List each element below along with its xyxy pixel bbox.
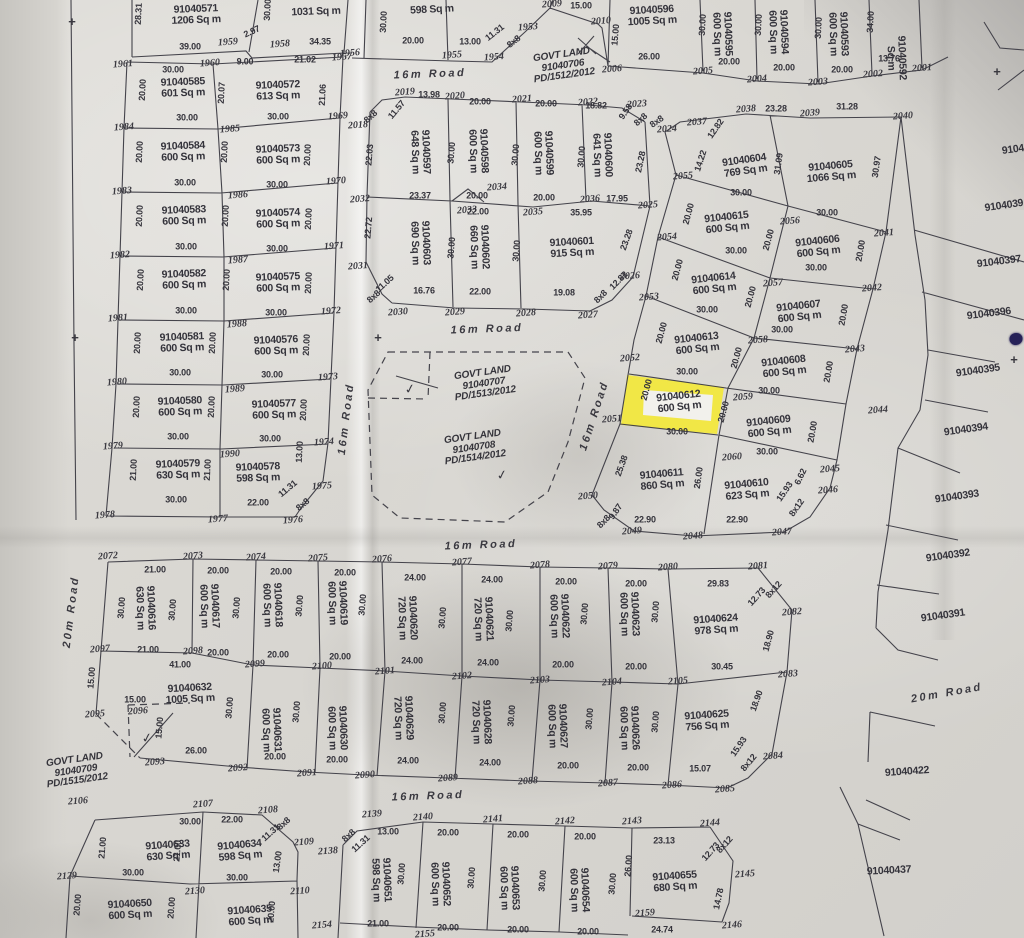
corner-point-2009: 2009: [542, 0, 563, 11]
corner-point-2096: 2096: [128, 706, 149, 718]
parcel-label-91040628: 91040628720 Sq m: [469, 699, 493, 744]
dimension-label: 20.00: [266, 901, 277, 923]
corner-point-2021: 2021: [512, 94, 533, 106]
corner-point-2090: 2090: [355, 770, 376, 782]
parcel-label-91040605: 910406051066 Sq m: [806, 159, 857, 185]
dimension-label: 30.00: [730, 188, 752, 197]
corner-point-2084: 2084: [763, 751, 784, 763]
dimension-label: 20.00: [535, 99, 557, 108]
corner-point-2081: 2081: [748, 561, 769, 573]
parcel-label-91040584: 91040584600 Sq m: [160, 140, 205, 164]
corner-point-2052: 2052: [620, 353, 641, 365]
corner-point-2110: 2110: [290, 886, 310, 898]
check-mark: ✓: [495, 467, 508, 482]
dimension-label: 30.00: [167, 432, 189, 441]
dimension-label: 20.00: [466, 191, 488, 200]
dimension-label: 20.00: [299, 399, 310, 421]
dimension-label: 23.13: [653, 836, 675, 845]
corner-point-1979: 1979: [103, 441, 124, 453]
parcel-label-91040618: 91040618600 Sq m: [260, 582, 284, 627]
dimension-label: 22.03: [364, 144, 375, 166]
corner-point-2041: 2041: [874, 228, 895, 240]
corner-point-2139: 2139: [362, 809, 383, 821]
dimension-label: 20.00: [329, 652, 351, 661]
dimension-label: 30.00: [576, 146, 587, 168]
dimension-label: 24.00: [481, 575, 503, 584]
plus-mark: +: [1010, 353, 1018, 367]
corner-point-2101: 2101: [375, 666, 396, 678]
corner-point-2091: 2091: [297, 768, 318, 780]
corner-point-2143: 2143: [622, 816, 643, 828]
corner-point-1959: 1959: [218, 37, 239, 49]
dimension-label: 20.00: [334, 568, 356, 577]
corner-point-2079: 2079: [598, 561, 619, 573]
parcel-label-91040655: 91040655680 Sq m: [652, 869, 698, 894]
dimension-label: 34.00: [866, 11, 877, 33]
plus-mark: +: [374, 331, 382, 345]
dimension-label: 30.00: [771, 325, 793, 334]
dimension-label: 30.00: [174, 178, 196, 187]
corner-point-2093: 2093: [145, 757, 166, 769]
corner-point-1987: 1987: [228, 255, 249, 267]
dimension-label: 21.00: [367, 919, 389, 928]
corner-point-2155: 2155: [415, 929, 436, 938]
corner-point-2086: 2086: [662, 780, 683, 792]
dimension-label: 20.00: [469, 97, 491, 106]
dimension-label: 20.00: [304, 272, 315, 294]
dimension-label: 17.95: [606, 194, 628, 203]
dimension-label: 20.00: [773, 63, 795, 72]
parcel-label-91040580: 91040580600 Sq m: [157, 395, 202, 419]
corner-point-1978: 1978: [95, 510, 116, 522]
corner-point-2100: 2100: [312, 661, 333, 673]
parcel-label-91040571: 910405711206 Sq m: [171, 3, 221, 27]
corner-point-2107: 2107: [193, 799, 214, 811]
dimension-label: 20.00: [533, 193, 555, 202]
corner-point-2058: 2058: [748, 335, 769, 347]
corner-point-1977: 1977: [208, 514, 229, 526]
parcel-label-91040599: 91040599600 Sq m: [531, 130, 555, 175]
dimension-label: 31.28: [836, 102, 858, 111]
parcel-label-91040600: 91040600641 Sq m: [590, 132, 614, 177]
parcel-label-91040615: 91040615600 Sq m: [704, 210, 750, 237]
dimension-label: 22.90: [634, 515, 656, 524]
parcel-label-91040437: 91040437: [867, 864, 912, 877]
parcel-label-91040634: 91040634598 Sq m: [217, 838, 263, 864]
dimension-label: 30.00: [650, 711, 661, 733]
dimension-label: 15.00: [570, 1, 592, 10]
corner-point-2031: 2031: [348, 261, 369, 273]
dimension-label: 30.00: [437, 702, 448, 724]
parcel-label-91040583: 91040583600 Sq m: [161, 204, 206, 228]
dimension-label: 30.00: [696, 305, 718, 314]
dimension-label: 30.00: [607, 873, 618, 895]
corner-point-1984: 1984: [114, 122, 135, 134]
dimension-label: 20.00: [207, 648, 229, 657]
dimension-label: 20.00: [507, 830, 529, 839]
dimension-label: 20.00: [133, 332, 144, 354]
dimension-label: 30.00: [259, 434, 281, 443]
corner-point-2087: 2087: [598, 778, 619, 790]
dimension-label: 29.83: [707, 579, 729, 588]
corner-point-2053: 2053: [639, 292, 660, 304]
corner-point-2006: 2006: [602, 64, 623, 76]
corner-point-2049: 2049: [622, 526, 643, 538]
dimension-label: 30.00: [267, 112, 289, 121]
dimension-label: 20.00: [208, 332, 219, 354]
dimension-label: 24.00: [479, 758, 501, 767]
dimension-label: 26.00: [623, 855, 634, 877]
corner-point-2001: 2001: [912, 63, 933, 75]
parcel-label-91040651: 91040651598 Sq m: [369, 857, 393, 902]
dimension-label: 30.00: [698, 14, 709, 36]
parcel-label-91040650: 91040650600 Sq m: [107, 898, 152, 922]
dimension-label: 13.98: [418, 90, 440, 99]
dimension-label: 13.00: [295, 441, 306, 463]
corner-point-1961: 1961: [113, 59, 134, 71]
dimension-label: 30.00: [263, 0, 274, 21]
corner-point-2145: 2145: [735, 869, 756, 881]
plus-mark: +: [993, 65, 1001, 79]
corner-point-2074: 2074: [246, 552, 267, 564]
corner-point-1989: 1989: [225, 384, 246, 396]
dimension-label: 20.07: [217, 82, 228, 104]
parcel-label-91040630: 91040630600 Sq m: [325, 705, 349, 750]
dimension-label: 20.00: [302, 334, 313, 356]
corner-point-2010: 2010: [591, 16, 612, 28]
dimension-label: 30.00: [650, 601, 661, 623]
dimension-label: 30.00: [754, 14, 765, 36]
dimension-label: 30.00: [165, 495, 187, 504]
parcel-label-91040626: 91040626600 Sq m: [617, 705, 641, 750]
parcel-label-91040622: 91040622600 Sq m: [547, 593, 571, 638]
corner-point-1960: 1960: [200, 58, 221, 70]
corner-point-2057: 2057: [763, 278, 784, 290]
dimension-label: 20.00: [132, 396, 143, 418]
parcel-label-91040612: 91040612600 Sq m: [656, 389, 702, 416]
corner-point-2080: 2080: [658, 562, 679, 574]
corner-point-1955: 1955: [442, 50, 463, 62]
parcel-label-91040613: 91040613600 Sq m: [674, 331, 720, 358]
dimension-label: 15.07: [689, 764, 711, 773]
parcel-label-91040619: 91040619600 Sq m: [325, 580, 349, 625]
dimension-label: 30.00: [231, 597, 242, 619]
corner-point-2025: 2025: [638, 200, 659, 212]
corner-point-2138: 2138: [318, 846, 339, 858]
corner-point-1976: 1976: [283, 515, 304, 527]
corner-point-2098: 2098: [183, 646, 204, 658]
corner-point-1972: 1972: [321, 306, 342, 318]
parcel-boundary-lines: [0, 0, 1024, 938]
dimension-label: 30.00: [261, 370, 283, 379]
dimension-label: 20.00: [437, 828, 459, 837]
dimension-label: 30.00: [396, 863, 407, 885]
check-mark: ✓: [403, 381, 416, 396]
parcel-label-91040574: 91040574600 Sq m: [255, 207, 300, 231]
dimension-label: 20.00: [625, 579, 647, 588]
dimension-label: 30.00: [579, 603, 590, 625]
corner-point-2102: 2102: [452, 671, 473, 683]
dimension-label: 30.00: [805, 263, 827, 272]
dimension-label: 30.00: [169, 368, 191, 377]
corner-point-2103: 2103: [530, 675, 551, 687]
corner-point-2154: 2154: [312, 920, 333, 932]
dimension-label: 30.00: [226, 873, 248, 882]
dimension-label: 20.00: [437, 923, 459, 932]
dimension-label: 30.00: [504, 610, 515, 632]
dimension-label: 13.00: [459, 37, 481, 46]
dimension-label: 22.00: [221, 815, 243, 824]
dimension-label: 21.00: [144, 565, 166, 574]
corner-point-2142: 2142: [555, 816, 576, 828]
corner-point-1980: 1980: [107, 377, 128, 389]
parcel-label-91040621: 91040621720 Sq m: [471, 596, 495, 641]
parcel-label-91040610: 91040610623 Sq m: [724, 477, 770, 503]
dimension-label: 30.00: [122, 868, 144, 877]
dimension-label: 22.90: [726, 515, 748, 524]
dimension-label: 30.00: [291, 701, 302, 723]
corner-point-2073: 2073: [183, 551, 204, 563]
parcel-label-91040611: 91040611860 Sq m: [639, 467, 685, 493]
parcel-label-91040578: 91040578598 Sq m: [235, 461, 280, 485]
parcel-label-91040609: 91040609600 Sq m: [746, 414, 792, 441]
corner-point-2037: 2037: [687, 117, 708, 129]
dimension-label: 19.08: [553, 288, 575, 297]
dimension-label: 20.00: [264, 752, 286, 761]
dimension-label: 20.00: [326, 755, 348, 764]
parcel-label-91040631: 91040631600 Sq m: [259, 707, 283, 752]
cadastral-map-photo: 910405711206 Sq m1031 Sq m91040585601 Sq…: [0, 0, 1024, 938]
dimension-label: 20.00: [304, 208, 315, 230]
corner-point-1986: 1986: [228, 190, 249, 202]
dimension-label: 24.00: [477, 658, 499, 667]
dimension-label: 30.00: [446, 237, 457, 259]
parcel-area-label: 1031 Sq m: [291, 6, 341, 19]
dimension-label: 20.00: [552, 660, 574, 669]
dimension-label: 20.00: [402, 36, 424, 45]
parcel-label-91040608: 91040608600 Sq m: [761, 354, 807, 381]
dimension-label: 20.00: [577, 927, 599, 936]
corner-point-2046: 2046: [818, 485, 839, 497]
corner-point-2045: 2045: [820, 464, 841, 476]
dimension-label: 15.00: [610, 24, 621, 46]
corner-point-2076: 2076: [372, 554, 393, 566]
dimension-label: 30.00: [175, 242, 197, 251]
corner-point-2075: 2075: [308, 553, 329, 565]
corner-point-2088: 2088: [518, 776, 539, 788]
parcel-label-91040593: 91040593600 Sq m: [826, 11, 850, 56]
dimension-label: 20.00: [270, 567, 292, 576]
corner-point-2027: 2027: [578, 310, 599, 322]
dimension-label: 30.00: [179, 817, 201, 826]
corner-point-2106: 2106: [68, 796, 89, 808]
corner-point-1953: 1953: [518, 22, 539, 34]
corner-point-2072: 2072: [98, 551, 119, 563]
parcel-label-91040617: 91040617600 Sq m: [197, 583, 221, 628]
dimension-label: 21.00: [172, 840, 183, 862]
dimension-label: 30.00: [506, 705, 517, 727]
corner-point-2089: 2089: [438, 773, 459, 785]
dimension-label: 30.00: [537, 870, 548, 892]
corner-point-1982: 1982: [110, 250, 131, 262]
dimension-label: 20.00: [718, 57, 740, 66]
dimension-label: 30.00: [167, 599, 178, 621]
dimension-label: 30.00: [676, 367, 698, 376]
parcel-label-91040607: 91040607600 Sq m: [776, 299, 822, 326]
dimension-label: 30.00: [176, 113, 198, 122]
check-mark: ✓: [140, 730, 153, 745]
dimension-label: 20.00: [221, 205, 232, 227]
dimension-label: 20.00: [831, 65, 853, 74]
corner-point-2140: 2140: [413, 812, 434, 824]
corner-point-1958: 1958: [270, 39, 291, 51]
dimension-label: 30.45: [711, 662, 733, 671]
corner-point-1969: 1969: [328, 111, 349, 123]
corner-point-2077: 2077: [452, 557, 473, 569]
parcel-label-91040624: 91040624978 Sq m: [693, 612, 739, 637]
dimension-label: 26.00: [638, 52, 660, 61]
dimension-label: 21.00: [203, 459, 214, 481]
parcel-label-91040582: 91040582600 Sq m: [161, 268, 206, 292]
corner-point-2051: 2051: [602, 414, 623, 426]
dimension-label: 13.00: [377, 827, 399, 836]
parcel-label-91040623: 91040623600 Sq m: [617, 591, 641, 636]
corner-point-2109: 2109: [294, 837, 315, 849]
corner-point-2030: 2030: [388, 307, 409, 319]
corner-point-2108: 2108: [258, 805, 279, 817]
corner-point-2129: 2129: [57, 871, 78, 883]
dimension-label: 16.76: [413, 286, 435, 295]
corner-point-2054: 2054: [657, 232, 678, 244]
dimension-label: 30.00: [584, 708, 595, 730]
dimension-label: 30.00: [294, 595, 305, 617]
dimension-label: 30.00: [510, 144, 521, 166]
corner-point-2040: 2040: [893, 111, 914, 123]
corner-point-1954: 1954: [484, 52, 505, 64]
dimension-label: 21.00: [129, 459, 140, 481]
dimension-label: 30.00: [725, 246, 747, 255]
dimension-label: 20.00: [135, 205, 146, 227]
parcel-label-91040585: 91040585601 Sq m: [160, 76, 205, 100]
corner-point-2020: 2020: [445, 91, 466, 103]
dimension-label: 20.00: [303, 144, 314, 166]
corner-point-2095: 2095: [85, 709, 106, 721]
corner-point-1973: 1973: [318, 372, 339, 384]
dimension-label: 24.74: [651, 925, 673, 934]
corner-point-2082: 2082: [782, 607, 803, 619]
corner-point-2002: 2002: [863, 69, 884, 81]
dimension-label: 30.00: [379, 11, 390, 33]
corner-point-2035: 2035: [523, 207, 544, 219]
dimension-label: 30.00: [162, 65, 184, 74]
dimension-label: 24.00: [397, 756, 419, 765]
dimension-label: 23.37: [409, 191, 431, 200]
corner-point-2038: 2038: [736, 104, 757, 116]
dimension-label: 41.00: [169, 660, 191, 669]
dimension-label: 22.00: [469, 287, 491, 296]
corner-point-2105: 2105: [668, 676, 689, 688]
corner-point-2036: 2036: [580, 194, 601, 206]
dimension-label: 9.00: [237, 57, 254, 66]
corner-point-2159: 2159: [635, 908, 656, 920]
parcel-label-91040616: 91040616630 Sq m: [133, 585, 157, 630]
parcel-label-91040633: 91040633630 Sq m: [145, 838, 191, 863]
dimension-label: 21.00: [97, 837, 108, 859]
parcel-label-91040594: 91040594600 Sq m: [766, 9, 790, 54]
dimension-label: 23.28: [765, 104, 787, 113]
dimension-label: 20.00: [136, 269, 147, 291]
corner-point-2024: 2024: [657, 124, 678, 136]
dimension-label: 20.00: [72, 894, 83, 916]
corner-point-1974: 1974: [314, 437, 335, 449]
corner-point-1957: 1957: [332, 52, 353, 64]
corner-point-1983: 1983: [112, 186, 133, 198]
dimension-label: 39.00: [179, 42, 201, 51]
corner-point-1975: 1975: [312, 481, 333, 493]
corner-point-2144: 2144: [700, 818, 721, 830]
corner-point-2059: 2059: [733, 392, 754, 404]
corner-point-2104: 2104: [602, 677, 623, 689]
dimension-label: 30.00: [814, 17, 825, 39]
corner-point-2146: 2146: [722, 920, 743, 932]
corner-point-1985: 1985: [220, 124, 241, 136]
dimension-label: 20.00: [555, 577, 577, 586]
corner-point-2029: 2029: [445, 307, 466, 319]
corner-point-2005: 2005: [693, 66, 714, 78]
dimension-label: 20.00: [507, 925, 529, 934]
corner-point-2056: 2056: [780, 216, 801, 228]
corner-point-2130: 2130: [185, 886, 206, 898]
parcel-label-91040602: 91040602660 Sq m: [467, 224, 491, 269]
corner-point-2083: 2083: [778, 669, 799, 681]
dimension-label: 30.00: [265, 308, 287, 317]
parcel-label-91040581: 91040581600 Sq m: [159, 331, 204, 355]
parcel-label-91040575: 91040575600 Sq m: [255, 271, 300, 295]
corner-point-2039: 2039: [800, 108, 821, 120]
corner-point-2048: 2048: [683, 531, 704, 543]
dimension-label: 30.00: [175, 306, 197, 315]
corner-point-2044: 2044: [868, 405, 889, 417]
dimension-label: 20.00: [135, 141, 146, 163]
corner-point-2032: 2032: [350, 194, 371, 206]
corner-point-2042: 2042: [862, 283, 883, 295]
dimension-label: 28.31: [134, 3, 145, 25]
dimension-label: 22.00: [247, 498, 269, 507]
parcel-label-91040597: 91040597648 Sq m: [408, 129, 432, 174]
dimension-label: 20.00: [625, 662, 647, 671]
dimension-label: 35.95: [570, 208, 592, 217]
parcel-label-91040579: 91040579630 Sq m: [155, 458, 200, 482]
corner-point-1970: 1970: [326, 176, 347, 188]
parcel-label-91040573: 91040573600 Sq m: [255, 143, 300, 167]
dimension-label: 30.00: [666, 427, 688, 436]
dimension-label: 20.00: [138, 79, 149, 101]
dimension-label: 20.00: [207, 396, 218, 418]
corner-point-2028: 2028: [516, 308, 537, 320]
dimension-label: 30.00: [756, 447, 778, 456]
corner-point-1971: 1971: [324, 241, 345, 253]
parcel-label-91040576: 91040576600 Sq m: [253, 334, 298, 358]
corner-point-2060: 2060: [722, 452, 743, 464]
dimension-label: 20.00: [557, 761, 579, 770]
dimension-label: 22.00: [467, 207, 489, 216]
dimension-label: 30.00: [816, 208, 838, 217]
dimension-label: 24.00: [404, 573, 426, 582]
corner-point-2050: 2050: [578, 491, 599, 503]
dimension-label: 22.72: [363, 217, 374, 239]
parcel-label-91040627: 91040627600 Sq m: [545, 703, 569, 748]
corner-point-2078: 2078: [530, 560, 551, 572]
